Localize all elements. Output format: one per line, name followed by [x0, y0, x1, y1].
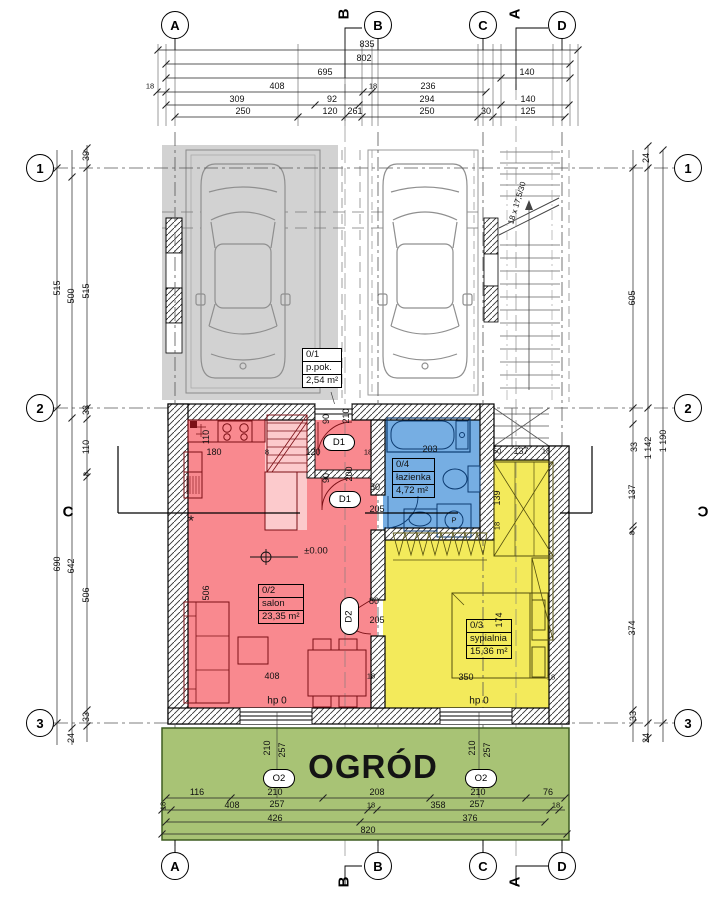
dim-label: *: [188, 513, 194, 530]
dim-label: 506: [81, 587, 91, 602]
dim-label: 140: [520, 94, 535, 104]
dim-label: 210: [470, 787, 485, 797]
dim-label: P: [451, 516, 456, 525]
dim-label: 8: [628, 531, 637, 535]
dim-label: 350: [458, 672, 473, 682]
dim-label: 18: [542, 447, 550, 456]
dim-label: ±0.00: [304, 546, 328, 557]
door-marker-D1-label: D1: [333, 437, 345, 448]
dim-label: 210: [467, 740, 477, 755]
dim-label: 80: [369, 596, 379, 606]
dim-label: 116: [190, 787, 204, 797]
dim-label: 92: [327, 94, 337, 104]
dim-label: 695: [317, 67, 332, 77]
window-marker-O2: O2: [263, 769, 295, 788]
dim-label: 835: [359, 39, 374, 49]
grid-marker-A: A: [161, 11, 189, 39]
grid-marker-3: 3: [674, 709, 702, 737]
dim-label: 33: [81, 712, 91, 722]
section-marker-C: C: [698, 504, 709, 521]
dim-label: 802: [356, 53, 371, 63]
door-marker-D1-label: D1: [339, 494, 351, 505]
dim-label: 18: [369, 82, 377, 91]
dim-label: 18: [159, 802, 168, 810]
room-label-bedroom: 0/3 sypialnia 15,36 m²: [466, 619, 512, 659]
room-area: 15,36 m²: [467, 645, 511, 658]
dim-label: 257: [269, 799, 284, 809]
door-marker-D1: D1: [323, 434, 355, 451]
dim-label: 257: [277, 742, 287, 757]
grid-marker-C: C: [469, 11, 497, 39]
section-marker-B: B: [336, 877, 353, 888]
room-name: sypialnia: [467, 632, 511, 645]
dim-label: 90: [321, 473, 331, 483]
window-marker-O2-label: O2: [273, 773, 286, 784]
dim-label: 80: [370, 482, 380, 492]
dim-label: 1 190: [658, 430, 668, 453]
section-marker-A: A: [507, 9, 524, 20]
dim-label: 261: [347, 106, 362, 116]
dim-label: 18: [146, 82, 154, 91]
door-marker-D1: D1: [329, 491, 361, 508]
section-marker-C: C: [63, 504, 74, 521]
room-number: 0/2: [259, 585, 303, 597]
garden-title: OGRÓD: [288, 748, 458, 786]
dim-label: 18: [552, 801, 560, 810]
room-label-bathroom: 0/4 łazienka 4,72 m²: [392, 458, 435, 498]
dim-label: 309: [229, 94, 244, 104]
dim-label: 33: [629, 442, 639, 452]
dim-label: 174: [494, 612, 504, 627]
dim-label: 18: [547, 673, 555, 682]
dim-label: 8: [82, 472, 91, 476]
door-marker-D2: D2: [340, 597, 359, 635]
dim-label: 50: [493, 447, 501, 456]
dim-label: 39: [81, 151, 91, 161]
dim-label: 408: [264, 671, 279, 681]
dim-label: 137: [627, 484, 637, 499]
dim-label: 642: [66, 558, 76, 573]
dim-label: 205: [369, 504, 384, 514]
dim-label: 110: [81, 440, 91, 454]
room-name: p.pok.: [303, 361, 341, 374]
dim-label: 376: [462, 813, 477, 823]
floor-plan: 0/1 p.pok. 2,54 m² 0/2 salon 23,35 m² 0/…: [0, 0, 728, 900]
dim-label: 24: [641, 153, 651, 163]
dim-label: 30: [481, 106, 491, 116]
dim-label: 506: [201, 585, 211, 600]
dim-label: 515: [52, 280, 62, 295]
grid-marker-B: B: [364, 852, 392, 880]
dim-label: 203: [422, 444, 437, 454]
dim-label: 208: [369, 787, 384, 797]
dim-label: 139: [492, 490, 502, 505]
text-overlay: 0/1 p.pok. 2,54 m² 0/2 salon 23,35 m² 0/…: [0, 0, 728, 900]
dim-label: 33: [81, 405, 91, 415]
room-number: 0/4: [393, 459, 434, 471]
dim-label: 140: [519, 67, 534, 77]
grid-marker-1: 1: [674, 154, 702, 182]
dim-label: 605: [627, 290, 637, 305]
dim-label: 210: [341, 408, 351, 423]
dim-label: 76: [543, 787, 553, 797]
section-marker-A: A: [507, 877, 524, 888]
dim-label: 210: [267, 787, 282, 797]
dim-label: 236: [420, 81, 435, 91]
grid-marker-D: D: [548, 852, 576, 880]
room-area: 23,35 m²: [259, 610, 303, 623]
dim-label: 257: [482, 742, 492, 757]
dim-label: 426: [267, 813, 282, 823]
dim-label: 18: [367, 801, 375, 810]
dim-label: 180: [206, 447, 221, 457]
dim-label: 294: [419, 94, 434, 104]
dim-label: 820: [360, 825, 375, 835]
dim-label: hp 0: [267, 696, 286, 707]
grid-marker-A: A: [161, 852, 189, 880]
room-name: salon: [259, 597, 303, 610]
dim-label: 110: [201, 430, 211, 444]
dim-label: 374: [627, 620, 637, 635]
dim-label: 24: [641, 733, 651, 743]
grid-marker-1: 1: [26, 154, 54, 182]
dim-label: 500: [66, 288, 76, 303]
dim-label: 18: [367, 672, 375, 681]
dim-label: 8: [265, 448, 269, 457]
room-label-garage-unit: 0/1 p.pok. 2,54 m²: [302, 348, 342, 388]
room-label-salon: 0/2 salon 23,35 m²: [258, 584, 304, 624]
dim-label: 18: [493, 522, 502, 530]
grid-marker-2: 2: [674, 394, 702, 422]
grid-marker-D: D: [548, 11, 576, 39]
dim-label: 90: [321, 414, 331, 424]
window-marker-O2: O2: [465, 769, 497, 788]
dim-label: 690: [52, 556, 62, 571]
dim-label: 120: [305, 447, 320, 457]
dim-label: hp 0: [469, 696, 488, 707]
dim-label: 1 142: [643, 437, 653, 460]
dim-label: 18 x 17,5/30: [506, 181, 527, 226]
dim-label: 257: [469, 799, 484, 809]
dim-label: 18: [364, 448, 372, 457]
door-marker-D2-label: D2: [344, 610, 355, 622]
room-area: 4,72 m²: [393, 484, 434, 497]
window-marker-O2-label: O2: [475, 773, 488, 784]
dim-label: 210: [262, 740, 272, 755]
grid-marker-C: C: [469, 852, 497, 880]
dim-label: 137: [513, 446, 528, 456]
dim-label: 250: [419, 106, 434, 116]
dim-label: 125: [520, 106, 535, 116]
grid-marker-3: 3: [26, 709, 54, 737]
dim-label: 200: [344, 466, 354, 481]
dim-label: 358: [430, 800, 445, 810]
section-marker-B: B: [336, 9, 353, 20]
room-number: 0/1: [303, 349, 341, 361]
dim-label: 250: [235, 106, 250, 116]
dim-label: 515: [81, 283, 91, 298]
dim-label: 120: [322, 106, 337, 116]
dim-label: 33: [628, 711, 638, 721]
room-area: 2,54 m²: [303, 374, 341, 387]
room-name: łazienka: [393, 471, 434, 484]
dim-label: 408: [269, 81, 284, 91]
grid-marker-2: 2: [26, 394, 54, 422]
dim-label: 408: [224, 800, 239, 810]
dim-label: 24: [66, 733, 76, 743]
dim-label: 205: [369, 615, 384, 625]
grid-marker-B: B: [364, 11, 392, 39]
